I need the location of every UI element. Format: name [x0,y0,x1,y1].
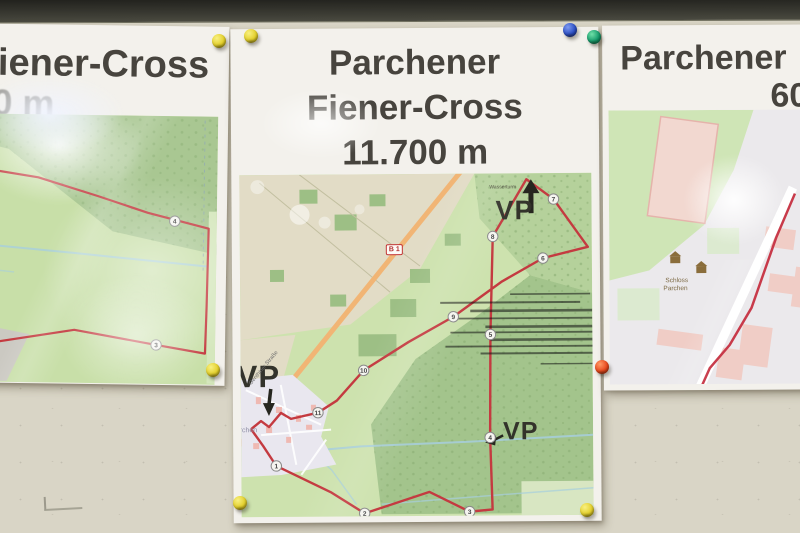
right-map-graphic [608,109,800,384]
route-marker-number: 7 [552,196,556,203]
town-label-parchen: Parchen [239,427,257,434]
route-marker-number: 3 [154,342,158,349]
route-marker-number: 3 [468,509,472,516]
route-marker-number: 11 [315,410,322,417]
push-pin-yellow [206,363,220,377]
route-marker-number: 2 [363,511,367,517]
poster-left-title: Fiener-Cross [0,41,229,88]
push-pin-yellow [212,34,226,48]
road-shield-b1: B 1 [386,244,403,255]
poi-label-schloss-line1: Schloss [665,278,688,285]
push-pin-green [587,30,601,44]
left-map-graphic: 43 [0,113,218,385]
route-marker-number: 8 [491,234,495,241]
push-pin-yellow [244,29,258,43]
route-marker-number: 10 [360,368,368,375]
vp-label-right: VP [503,419,539,444]
poster-center-map: 1234567891011 VP VP VP Wasserturm B 1 Ge… [239,173,593,517]
center-map-graphic: 1234567891011 [239,173,593,517]
route-marker-number: 4 [488,435,492,442]
route-marker-number: 5 [489,332,493,339]
wall-top-rail [0,0,800,23]
route-marker-number: 1 [274,463,278,470]
push-pin-red [595,360,609,374]
vp-label-top: VP [495,197,533,224]
poster-left-map: 43 [0,113,218,385]
push-pin-yellow [580,503,594,517]
route-marker-number: 9 [451,314,455,321]
poster-left-title-line1: Fiener-Cross [0,41,209,86]
push-pin-blue [563,23,577,37]
route-marker-number: 4 [173,219,177,226]
poster-center-title-line2: Fiener-Cross [231,84,599,132]
poster-center-title: Parchener Fiener-Cross 11.700 m [230,39,599,177]
poster-left: Fiener-Cross 0 m 43 [0,23,229,386]
poi-label-schloss-line2: Parchen [663,286,687,293]
poster-right-map: Schloss Parchen [608,109,800,384]
poster-center-title-line1: Parchener [230,39,598,87]
push-pin-yellow [233,496,247,510]
poster-right-title-line1: Parchener [620,39,787,79]
wall-bracket-mark [44,495,83,511]
poster-right: Parchener 60 [602,24,800,390]
route-marker-number: 6 [541,255,545,262]
poster-center: Parchener Fiener-Cross 11.700 m [230,27,601,524]
poster-center-title-line3: 11.700 m [231,129,599,177]
poi-label-wasserturm: Wasserturm [489,185,516,190]
schloss-building-icon [669,251,707,273]
photo-of-notice-board: Fiener-Cross 0 m 43 [0,0,800,533]
